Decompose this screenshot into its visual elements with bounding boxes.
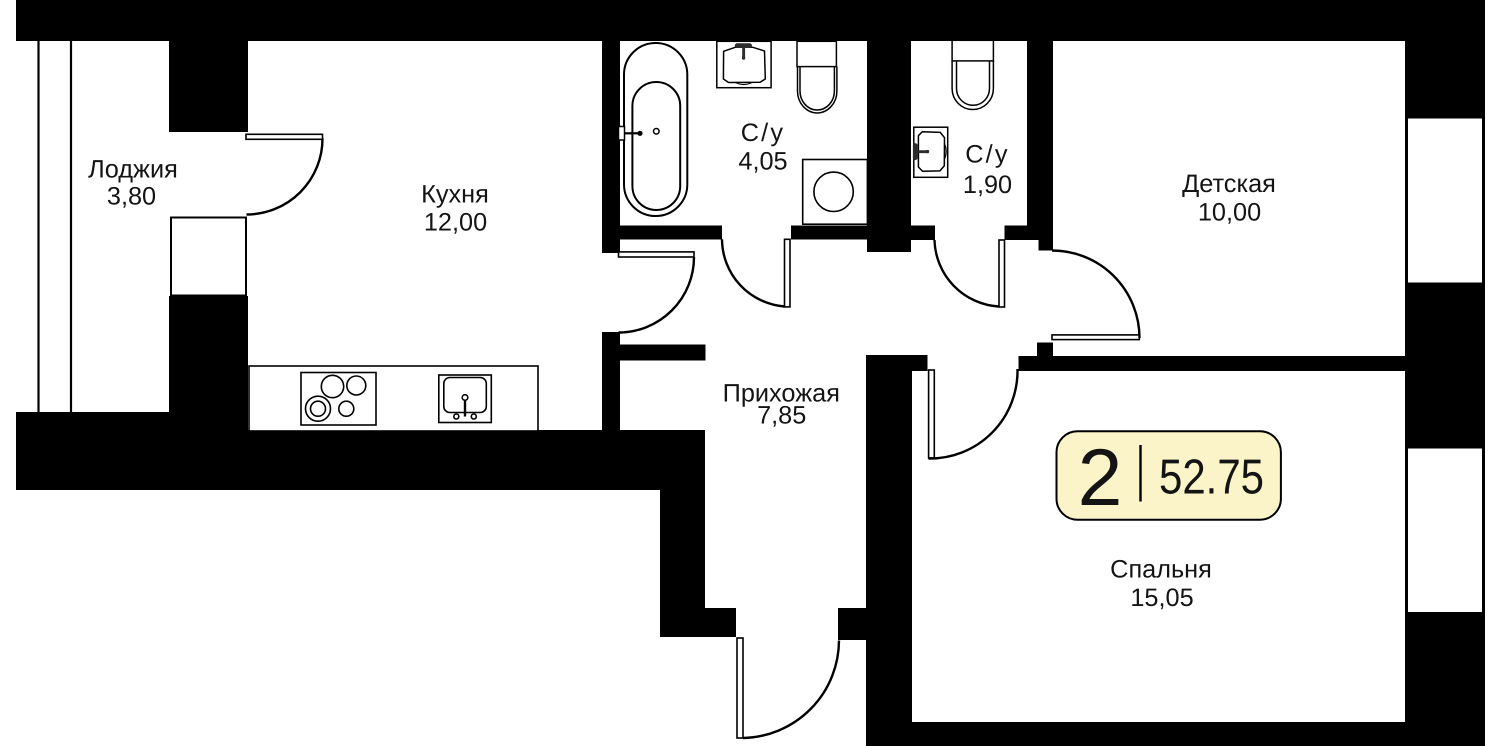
svg-text:С/у: С/у — [741, 119, 786, 147]
svg-text:7,85: 7,85 — [757, 402, 806, 430]
svg-text:С/у: С/у — [965, 141, 1010, 169]
svg-text:2: 2 — [1078, 433, 1123, 523]
svg-text:12,00: 12,00 — [424, 209, 487, 237]
svg-text:4,05: 4,05 — [738, 148, 787, 176]
svg-text:Спальня: Спальня — [1110, 556, 1212, 584]
svg-text:10,00: 10,00 — [1198, 199, 1261, 227]
svg-text:Лоджия: Лоджия — [88, 156, 178, 184]
svg-text:Детская: Детская — [1182, 170, 1276, 198]
svg-text:52.75: 52.75 — [1159, 450, 1264, 505]
svg-text:1,90: 1,90 — [963, 171, 1012, 199]
svg-text:15,05: 15,05 — [1130, 584, 1193, 612]
svg-text:3,80: 3,80 — [107, 183, 156, 211]
svg-text:Кухня: Кухня — [421, 181, 489, 209]
